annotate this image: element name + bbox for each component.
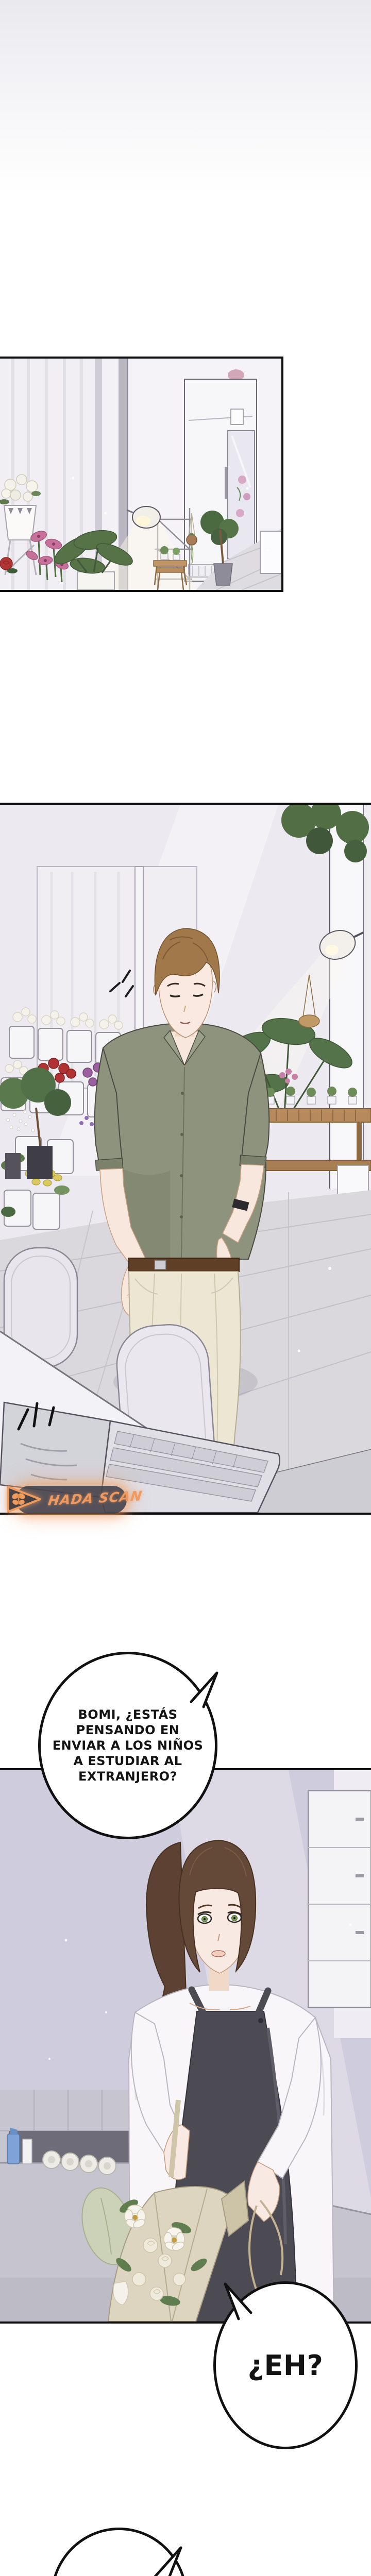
- panel2-art: [0, 805, 371, 1513]
- bubble-tail-top-right: [188, 1670, 221, 1710]
- belt: [129, 1258, 239, 1272]
- speech-bubble-bomi-question: BOMI, ¿ESTÁS PENSANDO EN ENVIAR A LOS NI…: [38, 1652, 217, 1839]
- bubble-tail-top-left: [219, 2281, 254, 2322]
- speech-bubble-ah: AH...: [50, 2528, 188, 2576]
- bubble-tail-top-right: [152, 2545, 185, 2576]
- drawer-unit: [308, 1791, 371, 2007]
- panel1-art: [0, 359, 281, 590]
- white-planter: [260, 531, 281, 573]
- panel-man-standing: [0, 803, 371, 1515]
- panel-woman-bouquet: [0, 1768, 371, 2324]
- panel-florist-corner: [0, 357, 283, 592]
- panel3-art: [0, 1770, 371, 2321]
- webtoon-page: HADA SCAN BOMI, ¿ESTÁS PENSANDO EN ENVIA…: [0, 0, 371, 2576]
- speech-bubble-eh: ¿EH?: [213, 2281, 358, 2449]
- bubble-text: BOMI, ¿ESTÁS PENSANDO EN ENVIAR A LOS NI…: [53, 1707, 204, 1784]
- mouth: [212, 1951, 225, 1957]
- triangle-arrow-icon: [4, 1483, 44, 1516]
- bright-pillar: [330, 805, 371, 1189]
- page-top-gradient: [0, 0, 371, 227]
- hada-scan-watermark: HADA SCAN: [4, 1482, 128, 1518]
- bubble-text: ¿EH?: [248, 2349, 324, 2382]
